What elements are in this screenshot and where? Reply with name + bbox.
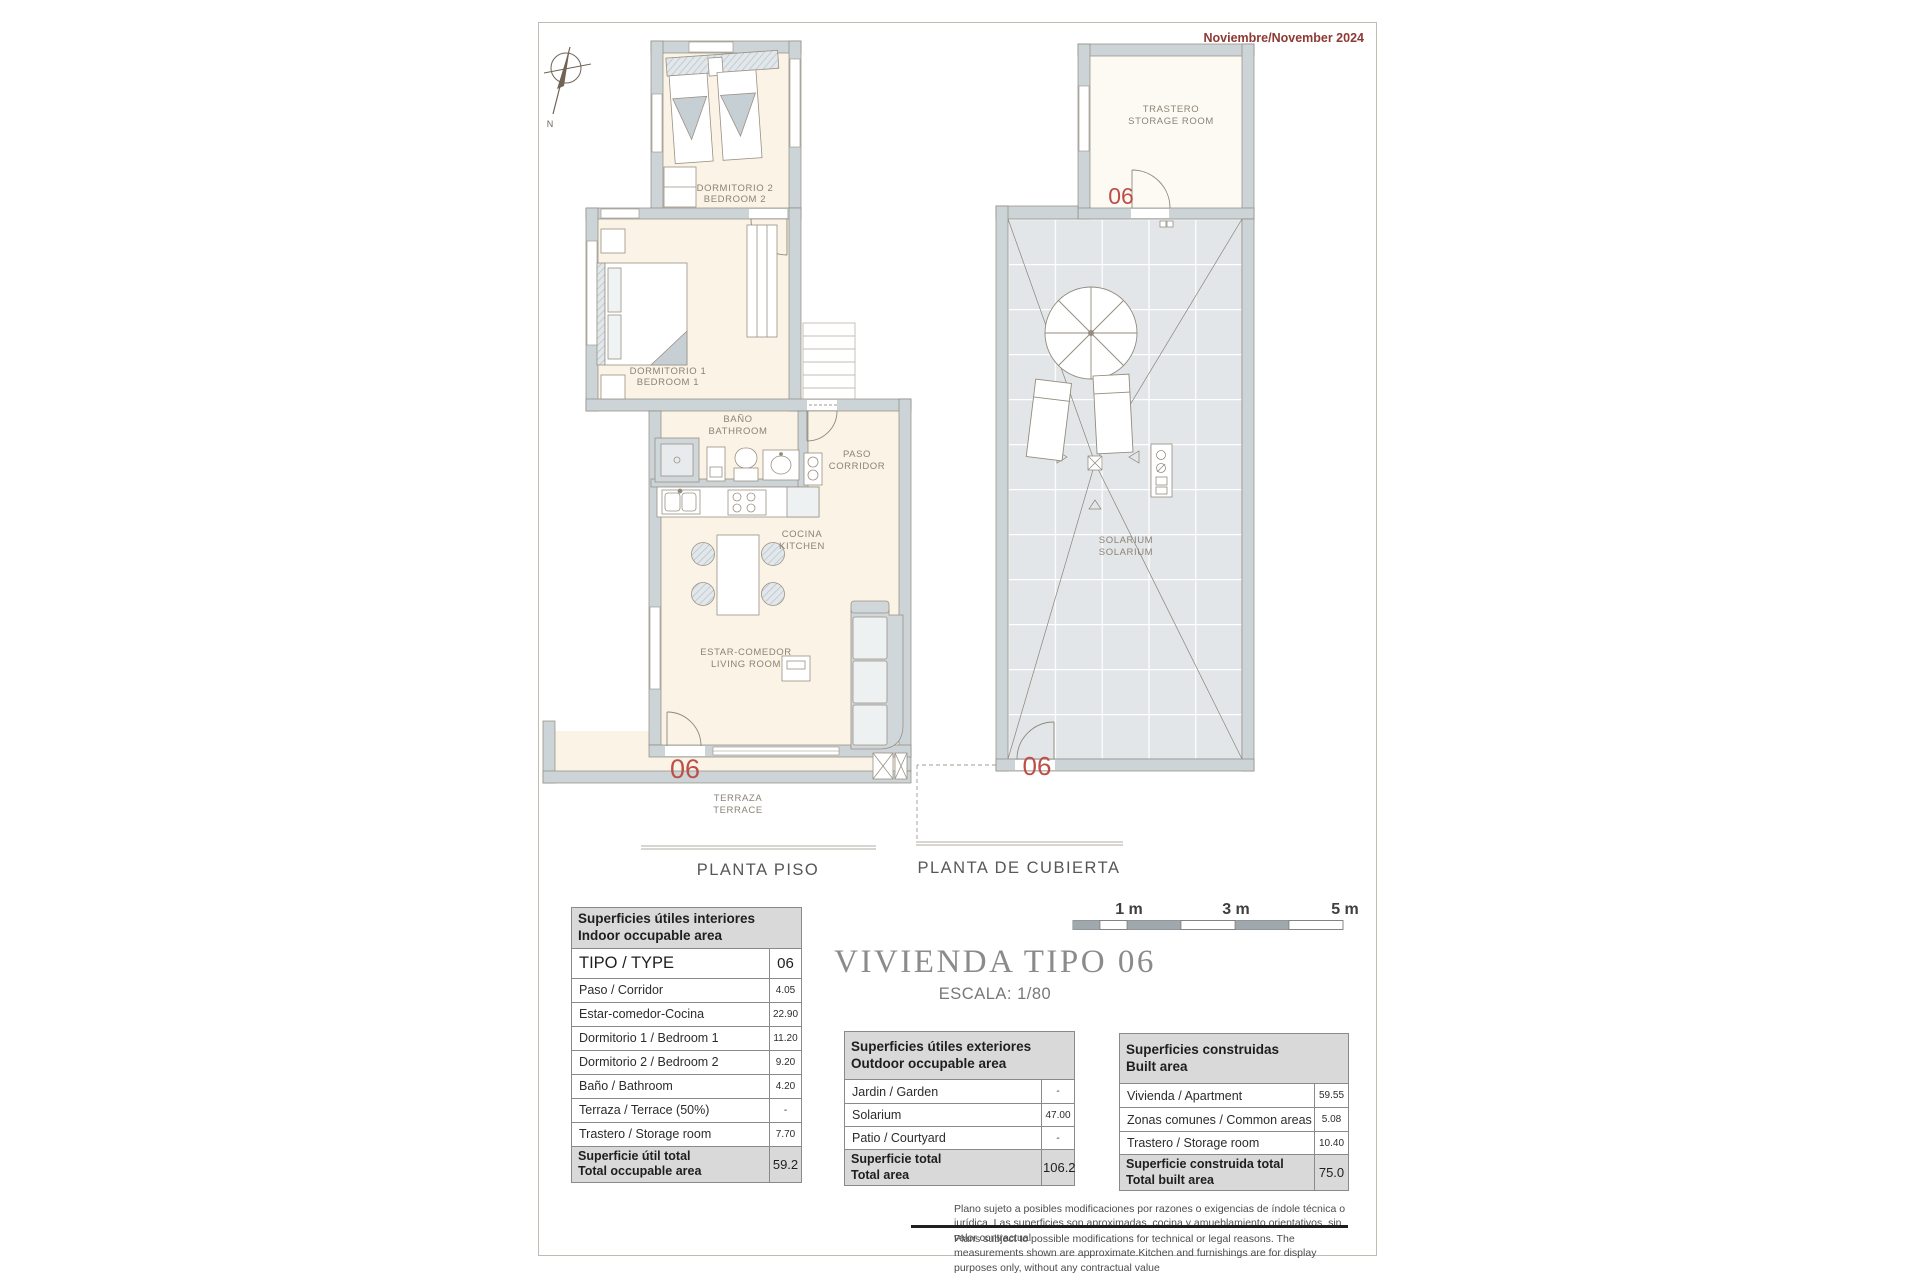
unit-number-roof: 06 (1023, 751, 1052, 781)
table-total-label: Superficie construida totalTotal built a… (1120, 1155, 1315, 1191)
room-label-corridor-en: CORRIDOR (829, 461, 886, 472)
room-label-terrace-en: TERRACE (713, 805, 763, 816)
table-row-value: - (770, 1098, 802, 1122)
table-total-value: 75.0 (1315, 1155, 1349, 1191)
scale-label-5m: 5 m (1331, 901, 1359, 918)
table-row-label: Jardin / Garden (845, 1080, 1042, 1104)
table-interior-areas: Superficies útiles interioresIndoor occu… (571, 907, 802, 1183)
solarium-tiles (1008, 219, 1242, 759)
unit-number-storage: 06 (1108, 183, 1134, 209)
table-total-label: Superficie totalTotal area (845, 1150, 1042, 1186)
type-value: 06 (770, 948, 802, 978)
table-row-value: 5.08 (1315, 1108, 1349, 1132)
vent-boxes (873, 753, 907, 779)
caption-floor-plan: PLANTA PISO (697, 861, 820, 879)
table-row-label: Terraza / Terrace (50%) (572, 1098, 770, 1122)
table-row-label: Dormitorio 2 / Bedroom 2 (572, 1050, 770, 1074)
room-label-bedroom1-en: BEDROOM 1 (637, 377, 699, 388)
table-total-value: 106.2 (1042, 1150, 1075, 1186)
compass-icon (544, 47, 591, 114)
scale-bar: 1 m 3 m 5 m (1073, 901, 1359, 930)
table-row-value: 9.20 (770, 1050, 802, 1074)
table-row-value: - (1042, 1080, 1075, 1104)
room-label-kitchen-en: KITCHEN (779, 541, 825, 552)
room-label-storage-es: TRASTERO (1143, 104, 1200, 115)
room-label-terrace-es: TERRAZA (714, 793, 763, 804)
plan-sheet: Noviembre/November 2024 N (538, 22, 1377, 1256)
table-built-header: Superficies construidasBuilt area (1120, 1034, 1349, 1084)
tv-unit (782, 656, 810, 681)
bedroom2-wardrobe (664, 167, 696, 207)
drain-panel (1151, 444, 1172, 497)
table-row-value: 7.70 (770, 1122, 802, 1146)
table-row-label: Trastero / Storage room (1120, 1132, 1315, 1155)
disclaimer-divider (911, 1225, 1348, 1228)
scale-label-3m: 3 m (1222, 901, 1250, 918)
caption-line-left (641, 846, 876, 849)
scale-text: ESCALA: 1/80 (795, 985, 1195, 1004)
table-row-value: 4.05 (770, 978, 802, 1002)
sofa (851, 601, 903, 749)
table-total-label: Superficie útil totalTotal occupable are… (572, 1146, 770, 1182)
room-label-corridor-es: PASO (843, 449, 871, 460)
compass-north-label: N (547, 119, 554, 129)
title-block: VIVIENDA TIPO 06 ESCALA: 1/80 (795, 944, 1195, 1004)
room-label-living-en: LIVING ROOM (711, 659, 781, 670)
table-row-label: Estar-comedor-Cocina (572, 1002, 770, 1026)
page-title: VIVIENDA TIPO 06 (795, 944, 1195, 981)
room-label-bathroom-es: BAÑO (723, 414, 752, 425)
screenshot-canvas: Noviembre/November 2024 N (0, 0, 1920, 1280)
table-row-value: 47.00 (1042, 1104, 1075, 1127)
table-row-value: 59.55 (1315, 1084, 1349, 1108)
table-row-value: - (1042, 1127, 1075, 1150)
room-label-bedroom1-es: DORMITORIO 1 (630, 366, 707, 377)
roof-boundary-dashes (917, 765, 996, 841)
table-row-label: Vivienda / Apartment (1120, 1084, 1315, 1108)
table-row-value: 11.20 (770, 1026, 802, 1050)
table-exterior-areas: Superficies útiles exterioresOutdoor occ… (844, 1031, 1075, 1186)
exterior-stair (803, 323, 855, 399)
caption-roof-plan: PLANTA DE CUBIERTA (917, 859, 1120, 877)
kitchen-counter (657, 487, 819, 517)
table-built-areas: Superficies construidasBuilt area Vivien… (1119, 1033, 1349, 1191)
scale-label-1m: 1 m (1115, 901, 1143, 918)
caption-line-right (916, 842, 1123, 845)
room-label-solarium-en: SOLARIUM (1099, 547, 1153, 558)
table-interior-header: Superficies útiles interioresIndoor occu… (572, 908, 802, 949)
water-heater (804, 453, 822, 485)
room-label-bedroom2-es: DORMITORIO 2 (697, 183, 774, 194)
table-row-value: 10.40 (1315, 1132, 1349, 1155)
room-label-solarium-es: SOLARIUM (1099, 535, 1153, 546)
table-row-value: 22.90 (770, 1002, 802, 1026)
table-row-label: Dormitorio 1 / Bedroom 1 (572, 1026, 770, 1050)
table-row-label: Patio / Courtyard (845, 1127, 1042, 1150)
unit-number-floor: 06 (670, 754, 700, 784)
table-row-label: Solarium (845, 1104, 1042, 1127)
table-exterior-header: Superficies útiles exterioresOutdoor occ… (845, 1032, 1075, 1080)
room-label-living-es: ESTAR-COMEDOR (700, 647, 792, 658)
disclaimer-english: Plans subject to possible modifications … (954, 1232, 1354, 1275)
room-label-storage-en: STORAGE ROOM (1128, 116, 1214, 127)
table-row-label: Trastero / Storage room (572, 1122, 770, 1146)
room-label-bathroom-en: BATHROOM (709, 426, 768, 437)
table-row-label: Paso / Corridor (572, 978, 770, 1002)
umbrella-icon (1045, 287, 1137, 379)
table-row-label: Zonas comunes / Common areas (1120, 1108, 1315, 1132)
table-row-value: 4.20 (770, 1074, 802, 1098)
room-label-kitchen-es: COCINA (782, 529, 823, 540)
table-total-value: 59.2 (770, 1146, 802, 1182)
type-label: TIPO / TYPE (572, 948, 770, 978)
table-row-label: Baño / Bathroom (572, 1074, 770, 1098)
room-label-bedroom2-en: BEDROOM 2 (704, 194, 766, 205)
